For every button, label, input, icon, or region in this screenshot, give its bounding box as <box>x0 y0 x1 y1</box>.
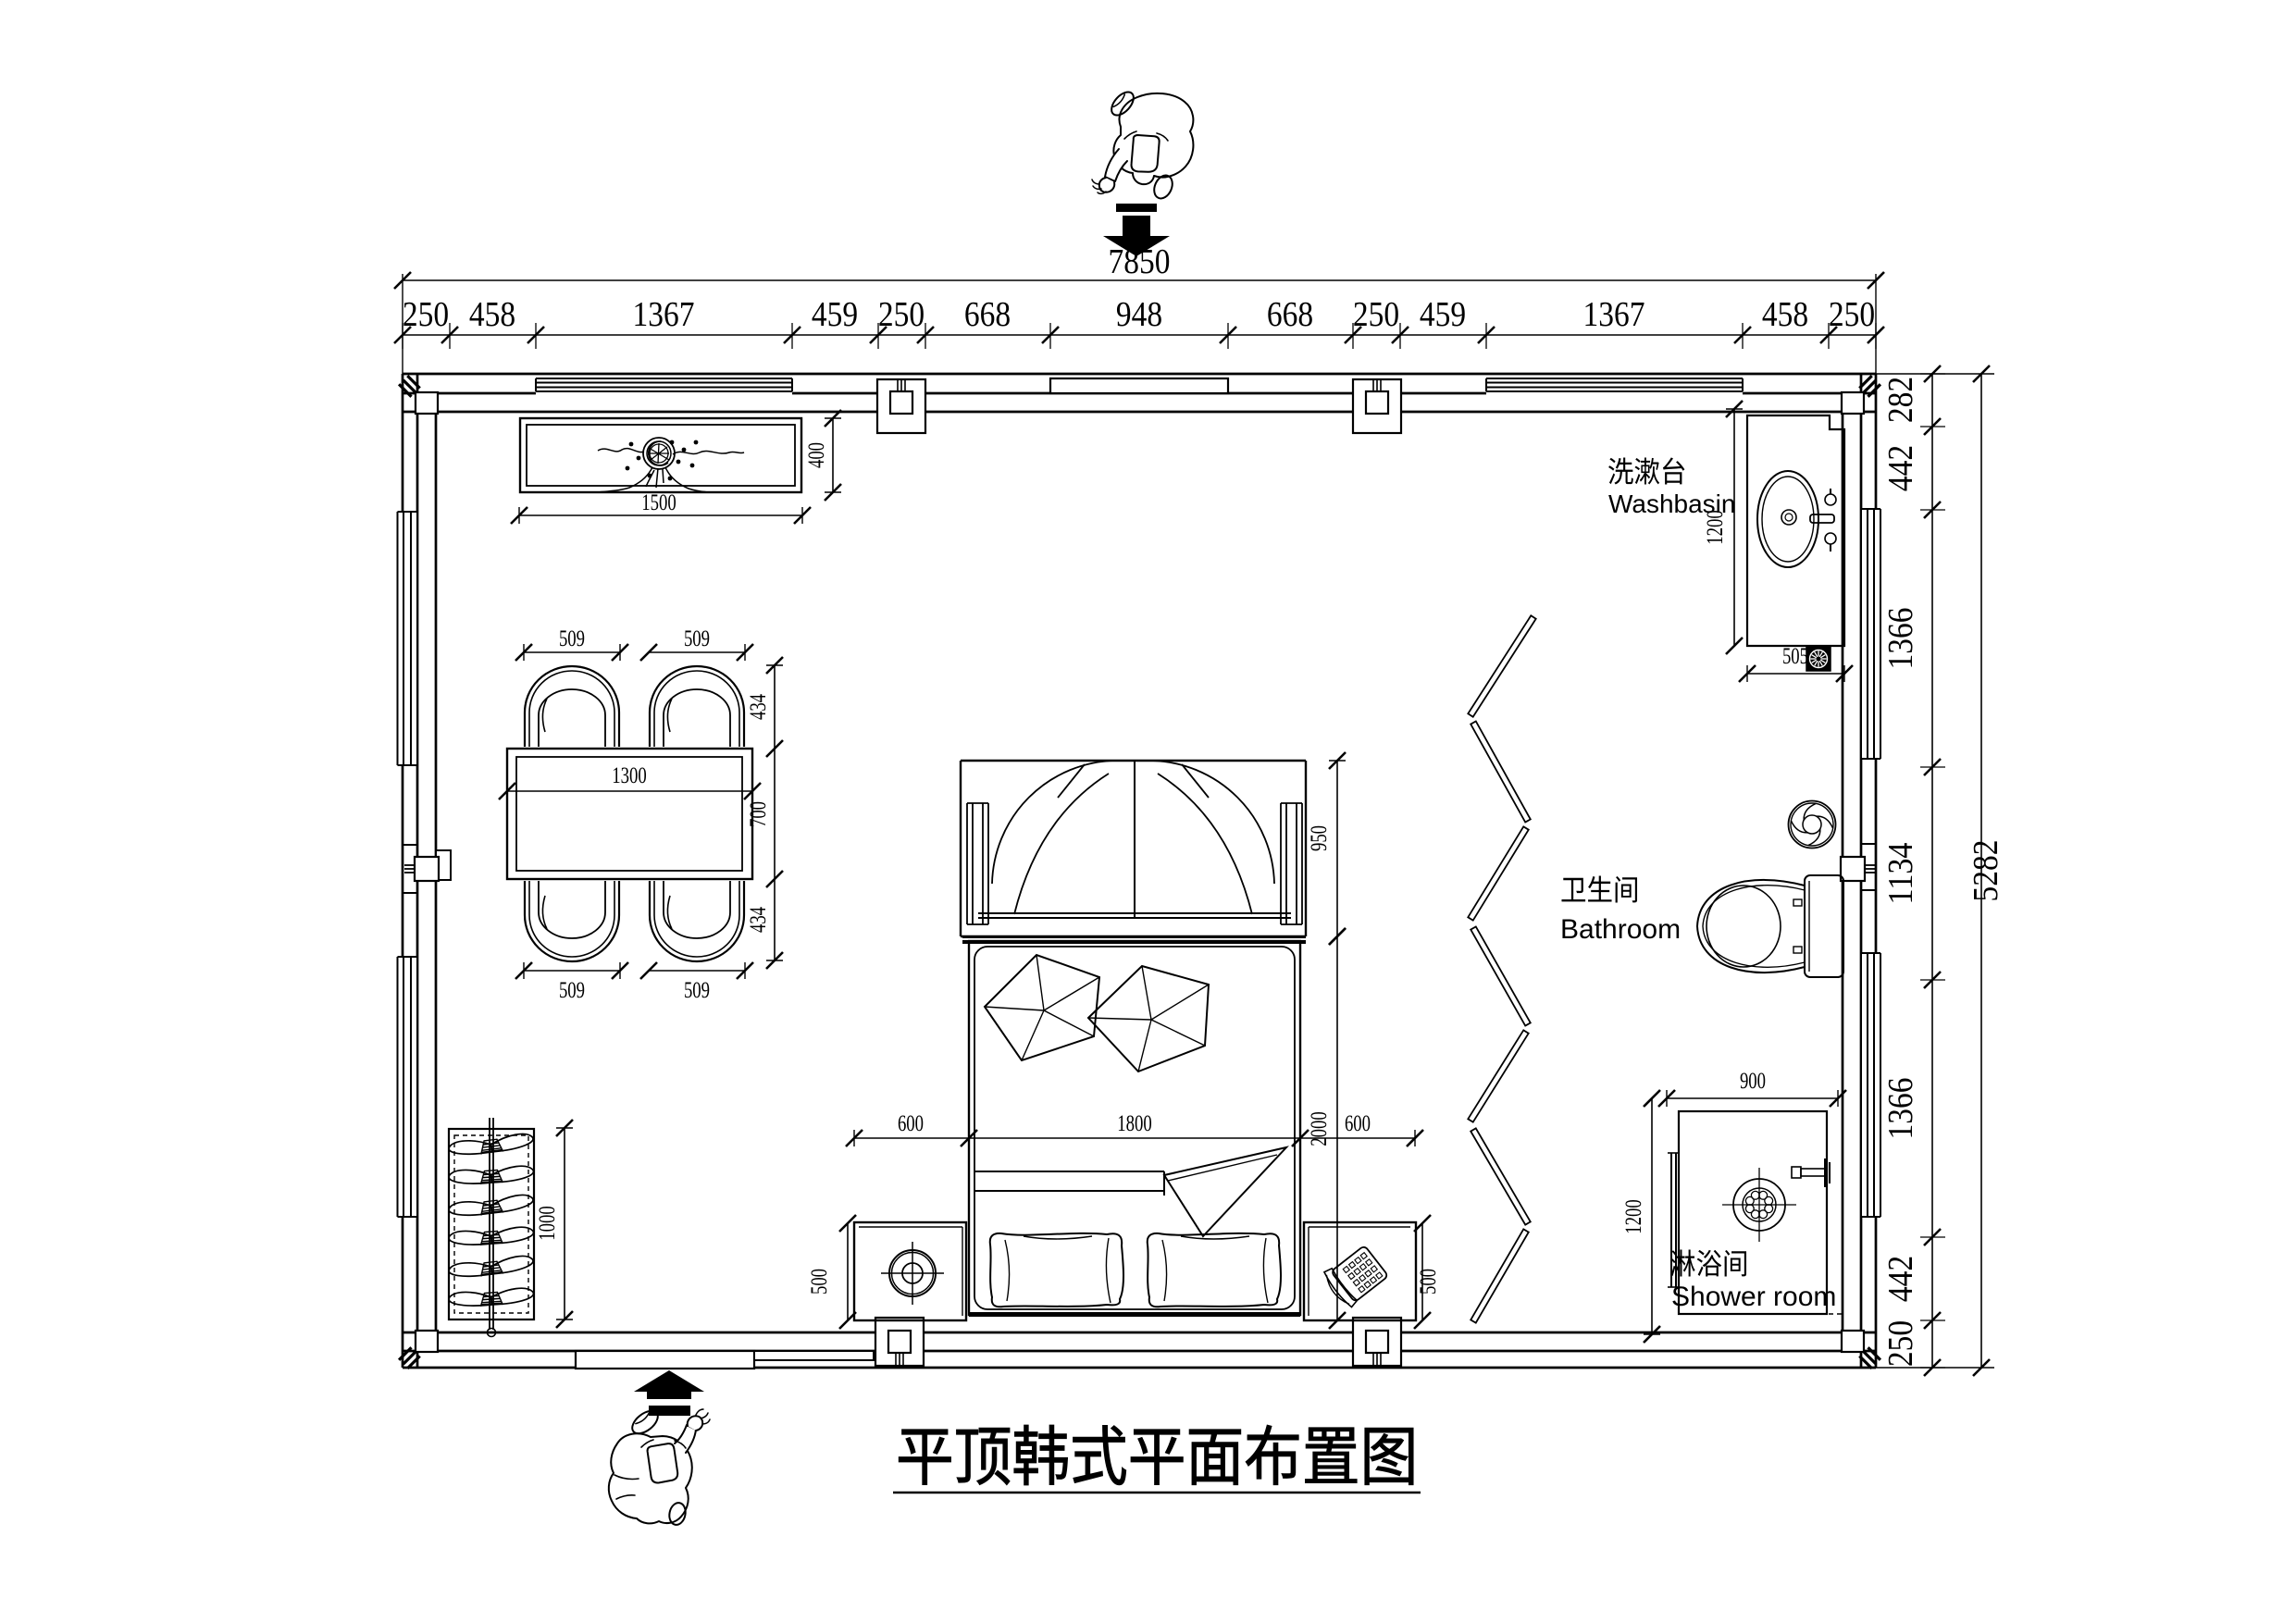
svg-text:900: 900 <box>1740 1069 1766 1094</box>
svg-text:668: 668 <box>964 295 1011 334</box>
svg-text:1366: 1366 <box>1881 608 1920 670</box>
svg-text:250: 250 <box>878 295 925 334</box>
svg-text:1134: 1134 <box>1881 843 1920 905</box>
svg-text:Bathroom: Bathroom <box>1560 914 1681 945</box>
svg-text:Shower room: Shower room <box>1671 1282 1836 1312</box>
svg-text:1000: 1000 <box>535 1206 560 1241</box>
svg-text:509: 509 <box>684 978 710 1003</box>
svg-text:1500: 1500 <box>641 490 676 515</box>
svg-text:434: 434 <box>746 694 771 720</box>
svg-text:459: 459 <box>812 295 858 334</box>
svg-text:250: 250 <box>1829 295 1875 334</box>
svg-text:948: 948 <box>1116 295 1162 334</box>
svg-text:458: 458 <box>469 295 515 334</box>
svg-text:1200: 1200 <box>1621 1199 1646 1234</box>
svg-text:509: 509 <box>684 626 710 651</box>
svg-text:1200: 1200 <box>1703 510 1728 545</box>
svg-text:509: 509 <box>559 626 585 651</box>
svg-text:1366: 1366 <box>1881 1078 1920 1140</box>
svg-text:282: 282 <box>1881 377 1920 423</box>
svg-text:1367: 1367 <box>633 295 695 334</box>
svg-text:600: 600 <box>1345 1111 1371 1136</box>
svg-text:1300: 1300 <box>612 763 647 788</box>
svg-text:1800: 1800 <box>1117 1111 1152 1136</box>
svg-text:459: 459 <box>1420 295 1466 334</box>
svg-text:250: 250 <box>1353 295 1399 334</box>
svg-text:442: 442 <box>1881 1256 1920 1302</box>
svg-text:5282: 5282 <box>1967 840 2005 902</box>
svg-text:250: 250 <box>1881 1320 1920 1367</box>
svg-text:250: 250 <box>403 295 449 334</box>
svg-text:668: 668 <box>1267 295 1313 334</box>
svg-text:2000: 2000 <box>1307 1111 1332 1146</box>
svg-text:950: 950 <box>1307 825 1332 851</box>
svg-text:442: 442 <box>1881 445 1920 491</box>
svg-text:700: 700 <box>746 801 771 827</box>
svg-text:509: 509 <box>559 978 585 1003</box>
svg-text:500: 500 <box>1416 1269 1441 1295</box>
svg-text:458: 458 <box>1762 295 1808 334</box>
svg-text:434: 434 <box>746 907 771 933</box>
svg-text:500: 500 <box>807 1269 832 1295</box>
svg-text:600: 600 <box>898 1111 924 1136</box>
svg-text:505: 505 <box>1782 644 1808 669</box>
svg-text:1367: 1367 <box>1583 295 1645 334</box>
svg-text:400: 400 <box>804 442 829 468</box>
